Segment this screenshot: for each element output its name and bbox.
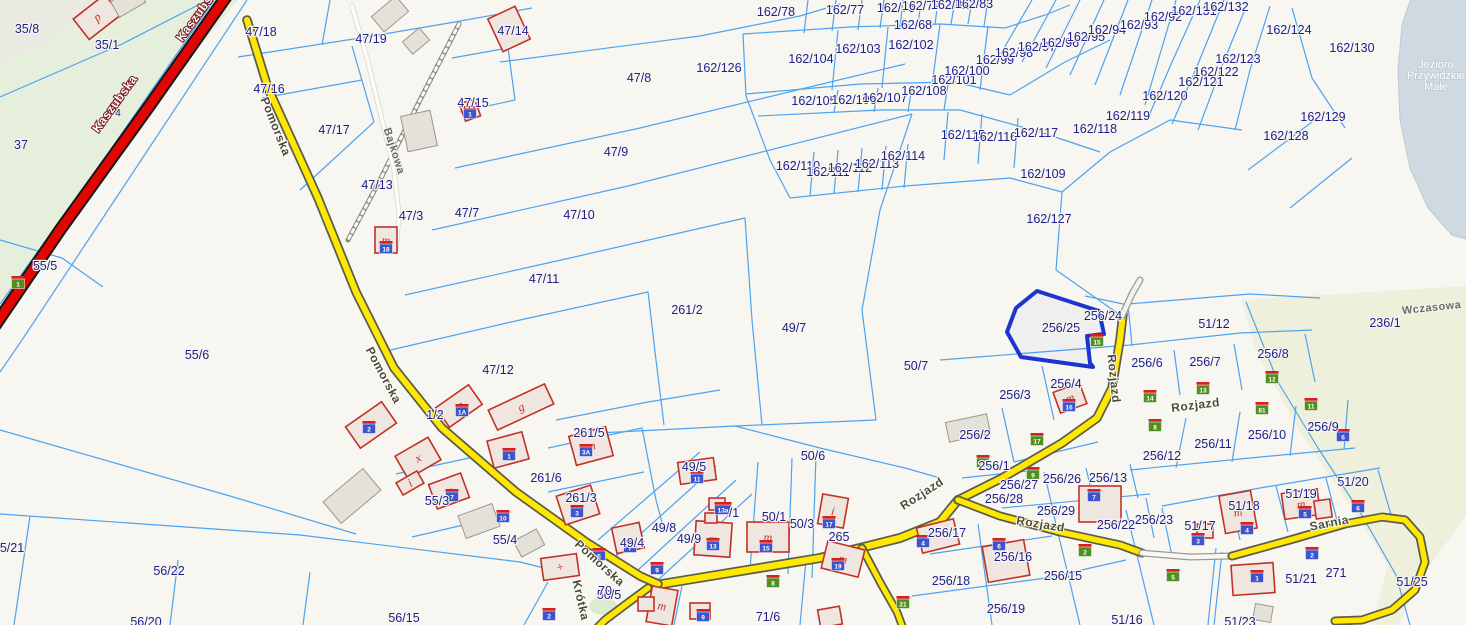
parcel-label-162/132[interactable]: 162/132 [1203,0,1248,14]
address-plate-18: 18 [380,241,393,254]
parcel-label-162/127[interactable]: 162/127 [1026,212,1071,226]
plate-red-bar [897,596,910,599]
plate-number: 8 [1153,425,1157,432]
plate-number: 1 [16,282,20,289]
plate-number: 13 [709,544,717,551]
parcel-label-256/24[interactable]: 256/24 [1084,309,1122,323]
parcel-label-261/5[interactable]: 261/5 [573,426,604,440]
plate-red-bar [1266,371,1279,374]
address-plate-21: 21 [897,596,910,609]
address-plate-15: 15 [760,540,773,553]
plate-red-bar [1241,522,1254,525]
parcel-label-256/23[interactable]: 256/23 [1135,513,1173,527]
parcel-label-49/8[interactable]: 49/8 [652,521,676,535]
parcel-label-5/21[interactable]: 5/21 [0,541,24,555]
parcel-label-50/7[interactable]: 50/7 [904,359,928,373]
plate-red-bar [456,404,469,407]
plate-number: 17 [1033,439,1041,446]
parcel-label-256/8[interactable]: 256/8 [1257,347,1288,361]
parcel-label-261/3[interactable]: 261/3 [565,491,596,505]
address-plate-19: 19 [832,558,845,571]
address-plate-3: 3 [1192,533,1205,546]
plate-number: 5 [1171,575,1175,582]
parcel-label-256/3[interactable]: 256/3 [999,388,1030,402]
plate-red-bar [707,538,720,541]
building [638,597,654,611]
gray-building [1253,604,1274,623]
parcel-label-256/22[interactable]: 256/22 [1097,518,1135,532]
plate-red-bar [1256,402,1269,405]
parcel-label-47/12[interactable]: 47/12 [482,363,513,377]
parcel-label-56/15[interactable]: 56/15 [388,611,419,625]
parcel-label-47/13[interactable]: 47/13 [361,178,392,192]
plate-number: 3 [1196,539,1200,546]
address-plate-2: 2 [1306,547,1319,560]
plate-number: 1 [468,112,472,119]
plate-red-bar [1352,500,1365,503]
parcel-label-49/5[interactable]: 49/5 [682,460,706,474]
address-plate-5: 5 [1167,569,1180,582]
cadastral-map[interactable]: pmmgximmmmmmimm+mmm181A2173A3759111313a1… [0,0,1466,625]
plate-number: 13a [718,508,729,515]
plate-number: 21 [899,602,907,609]
address-plate-1: 1 [12,276,25,289]
address-plate-5: 5 [1299,506,1312,519]
address-plate-4: 4 [1241,522,1254,535]
plate-number: 2 [1310,553,1314,560]
parcel-label-162/126[interactable]: 162/126 [696,61,741,75]
parcel-label-271[interactable]: 271 [1326,566,1347,580]
address-plate-15: 15 [1091,334,1104,347]
plate-red-bar [697,609,710,612]
plate-red-bar [832,558,845,561]
plate-red-bar [1091,334,1104,337]
parcel-label-47/7[interactable]: 47/7 [455,206,479,220]
plate-red-bar [1027,467,1040,470]
parcel-label-47/3[interactable]: 47/3 [399,209,423,223]
parcel-label-47/18[interactable]: 47/18 [245,25,276,39]
plate-red-bar [767,575,780,578]
parcel-label-162/68[interactable]: 162/68 [894,18,932,32]
address-plate-10: 10 [497,510,510,523]
plate-number: 2 [547,614,551,621]
parcel-label-51/25[interactable]: 51/25 [1396,575,1427,589]
address-plate-6: 6 [1352,500,1365,513]
plate-number: 1 [507,454,511,461]
parcel-label-51/17[interactable]: 51/17 [1184,519,1215,533]
parcel-label-162/108[interactable]: 162/108 [901,84,946,98]
parcel-label-256/10[interactable]: 256/10 [1248,428,1286,442]
plate-number: 2 [1083,550,1087,557]
plate-red-bar [715,502,732,505]
plate-number: 14 [1146,396,1154,403]
parcel-label-/1[interactable]: /1 [729,506,739,520]
plate-number: 2 [367,427,371,434]
parcel-label-51/23[interactable]: 51/23 [1224,615,1255,625]
address-plate-11: 11 [1305,398,1318,411]
plate-red-bar [12,276,25,279]
plate-number: 8 [771,581,775,588]
plate-red-bar [580,444,593,447]
plate-red-bar [497,510,510,513]
plate-red-bar [1306,547,1319,550]
plate-red-bar [1063,399,1076,402]
plate-red-bar [1031,433,1044,436]
parcel-label-162/119[interactable]: 162/119 [1106,109,1150,123]
plate-red-bar [503,448,516,451]
parcel-label-37[interactable]: 37 [14,138,28,152]
parcel-label-162/114[interactable]: 162/114 [881,149,925,163]
address-plate-17: 17 [823,516,836,529]
parcel-label-256/4[interactable]: 256/4 [1050,377,1081,391]
plate-number: 11 [1308,404,1315,411]
parcel-label-47/15[interactable]: 47/15 [457,96,488,110]
parcel-label-256/7[interactable]: 256/7 [1189,355,1220,369]
parcel-label-162/120[interactable]: 162/120 [1142,89,1187,103]
parcel-label-256/9[interactable]: 256/9 [1307,420,1338,434]
plate-red-bar [1167,569,1180,572]
address-plate-3: 3 [571,505,584,518]
parcel-label-56/22[interactable]: 56/22 [153,564,184,578]
parcel-label-47/11[interactable]: 47/11 [529,272,559,286]
plate-number: 19 [834,564,842,571]
plate-red-bar [1149,419,1162,422]
address-plate-1: 1 [503,448,516,461]
parcel-label-50/3[interactable]: 50/3 [790,517,814,531]
plate-number: 13 [1199,388,1207,395]
address-plate-16: 16 [1063,399,1076,412]
address-plate-81: 81 [1256,402,1269,415]
parcel-label-55/6[interactable]: 55/6 [185,348,209,362]
address-plate-1A: 1A [456,404,469,417]
plate-red-bar [760,540,773,543]
plate-number: 3A [582,450,591,457]
plate-red-bar [363,421,376,424]
parcel-label-256/29[interactable]: 256/29 [1037,504,1075,518]
plate-number: 7 [1092,495,1096,502]
parcel-label-162/130[interactable]: 162/130 [1329,41,1374,55]
parcel-label-47/8[interactable]: 47/8 [627,71,651,85]
parcel-label-51/20[interactable]: 51/20 [1337,475,1368,489]
plate-red-bar [823,516,836,519]
parcel-label-256/17[interactable]: 256/17 [928,526,966,540]
plate-number: 1 [1255,576,1259,583]
plate-red-bar [977,455,990,458]
plate-number: 5 [1303,512,1307,519]
building [818,606,843,625]
parcel-label-50/1[interactable]: 50/1 [762,510,786,524]
plate-number: 6 [1356,506,1360,513]
parcel-label-162/128[interactable]: 162/128 [1263,129,1308,143]
parcel-label-47/10[interactable]: 47/10 [563,208,594,222]
plate-red-bar [1079,544,1092,547]
address-plate-13: 13 [707,538,720,551]
parcel-label-256/18[interactable]: 256/18 [932,574,970,588]
parcel-label-55/3[interactable]: 55/3 [425,494,449,508]
building [1253,604,1274,623]
parcel-label-256/26[interactable]: 256/26 [1043,472,1081,486]
plate-number: 81 [1258,408,1266,415]
plate-red-bar [571,505,584,508]
plate-number: 9 [655,568,659,575]
parcel-label-162/78[interactable]: 162/78 [757,5,795,19]
parcel-label-49/4[interactable]: 49/4 [620,536,644,550]
address-plate-1: 1 [1251,570,1264,583]
plate-number: 16 [1065,405,1073,412]
parcel-label-162/121[interactable]: 162/121 [1178,75,1223,89]
parcel-label-162/77[interactable]: 162/77 [826,3,864,17]
plate-red-bar [1144,390,1157,393]
parcel-label-261/2[interactable]: 261/2 [671,303,702,317]
address-plate-14: 14 [1144,390,1157,403]
parcel-label-261/6[interactable]: 261/6 [530,471,561,485]
parcel-label-162/109[interactable]: 162/109 [1020,167,1065,181]
address-plate-7: 7 [1088,489,1101,502]
parcel-label-49/9[interactable]: 49/9 [677,532,701,546]
address-plate-3A: 3A [580,444,593,457]
parcel-label-56/20[interactable]: 56/20 [130,615,161,625]
parcel-label-49/7[interactable]: 49/7 [782,321,806,335]
address-plate-2: 2 [1079,544,1092,557]
parcel-label-47/14[interactable]: 47/14 [497,24,528,38]
building-outline [638,597,654,611]
plate-red-bar [1197,382,1210,385]
plate-number: 9 [701,615,705,622]
plate-number: 4 [1245,528,1249,535]
building-outline [818,606,843,625]
parcel-label-51/19[interactable]: 51/19 [1285,487,1316,501]
parcel-label-256/15[interactable]: 256/15 [1044,569,1082,583]
plate-number: 1A [458,410,467,417]
parcel-label-47/17[interactable]: 47/17 [318,123,349,137]
parcel-label-256/6[interactable]: 256/6 [1131,356,1162,370]
address-plate-2: 2 [543,608,556,621]
parcel-label-256/13[interactable]: 256/13 [1089,471,1127,485]
parcel-label-256/12[interactable]: 256/12 [1143,449,1181,463]
address-plate-2: 2 [363,421,376,434]
parcel-label-256/28[interactable]: 256/28 [985,492,1023,506]
address-plate-13: 13 [1197,382,1210,395]
parcel-label-256/25[interactable]: 256/25 [1042,321,1080,335]
parcel-label-1/2[interactable]: 1/2 [426,408,443,422]
plate-number: 15 [762,546,770,553]
parcel-label-162/103[interactable]: 162/103 [835,42,880,56]
parcel-label-162/129[interactable]: 162/129 [1300,110,1345,124]
plate-number: 7 [450,495,454,502]
plate-red-bar [446,489,459,492]
parcel-label-162/104[interactable]: 162/104 [788,52,833,66]
plate-number: 12 [1268,377,1276,384]
parcel-label-265[interactable]: 265 [829,530,850,544]
parcel-label-55/5[interactable]: 55/5 [33,259,57,273]
address-plate-9: 9 [651,562,664,575]
plate-number: 17 [825,522,833,529]
parcel-label-50/6[interactable]: 50/6 [801,449,825,463]
address-plate-8: 8 [1149,419,1162,432]
plate-red-bar [1192,533,1205,536]
parcel-label-256/11[interactable]: 256/11 [1194,437,1231,451]
plate-red-bar [1305,398,1318,401]
parcel-label-162/105[interactable]: 162/105 [791,94,836,108]
parcel-label-256/2[interactable]: 256/2 [959,428,990,442]
parcel-label-256/1[interactable]: 256/1 [978,459,1009,473]
parcel-label-71/6[interactable]: 71/6 [756,610,780,624]
plate-number: 11 [694,477,701,484]
address-plate-9: 9 [697,609,710,622]
plate-number: 10 [499,516,507,523]
plate-number: 15 [1093,340,1101,347]
parcel-label-162/102[interactable]: 162/102 [888,38,933,52]
parcel-label-256/19[interactable]: 256/19 [987,602,1025,616]
parcel-label-70[interactable]: 70 [598,584,612,598]
address-plate-6: 6 [993,538,1006,551]
plate-red-bar [543,608,556,611]
parcel-label-162/117[interactable]: 162/117 [1014,126,1058,140]
plate-red-bar [1251,570,1264,573]
plate-red-bar [1088,489,1101,492]
parcel-label-162/124[interactable]: 162/124 [1266,23,1311,37]
parcel-label-162/118[interactable]: 162/118 [1073,122,1117,136]
parcel-label-47/16[interactable]: 47/16 [253,82,284,96]
building: + [541,554,580,581]
parcel-label-55/4[interactable]: 55/4 [493,533,517,547]
parcel-label-162/116[interactable]: 162/116 [973,130,1017,144]
plate-number: 4 [921,541,925,548]
parcel-label-162/123[interactable]: 162/123 [1215,52,1260,66]
plate-red-bar [993,538,1006,541]
plate-number: 3 [575,511,579,518]
parcel-label-51/18[interactable]: 51/18 [1228,499,1259,513]
parcel-label-35/8[interactable]: 35/8 [15,22,39,36]
parcel-label-51/12[interactable]: 51/12 [1198,317,1229,331]
address-plate-17: 17 [1031,433,1044,446]
plate-red-bar [651,562,664,565]
parcel-label-47/9[interactable]: 47/9 [604,145,628,159]
parcel-label-47/19[interactable]: 47/19 [355,32,386,46]
map-canvas[interactable]: pmmgximmmmmmimm+mmm181A2173A3759111313a1… [0,0,1466,625]
plate-red-bar [380,241,393,244]
plate-number: 6 [1341,435,1345,442]
parcel-label-51/21[interactable]: 51/21 [1285,572,1316,586]
address-plate-8: 8 [767,575,780,588]
parcel-label-162/83[interactable]: 162/83 [955,0,993,11]
parcel-label-236/1[interactable]: 236/1 [1369,316,1400,330]
parcel-label-51/16[interactable]: 51/16 [1111,613,1142,625]
address-plate-12: 12 [1266,371,1279,384]
parcel-label-256/27[interactable]: 256/27 [1000,478,1038,492]
parcel-label-35/1[interactable]: 35/1 [95,38,119,52]
plate-number: 18 [382,247,390,254]
plate-red-bar [1299,506,1312,509]
parcel-label-256/16[interactable]: 256/16 [994,550,1032,564]
